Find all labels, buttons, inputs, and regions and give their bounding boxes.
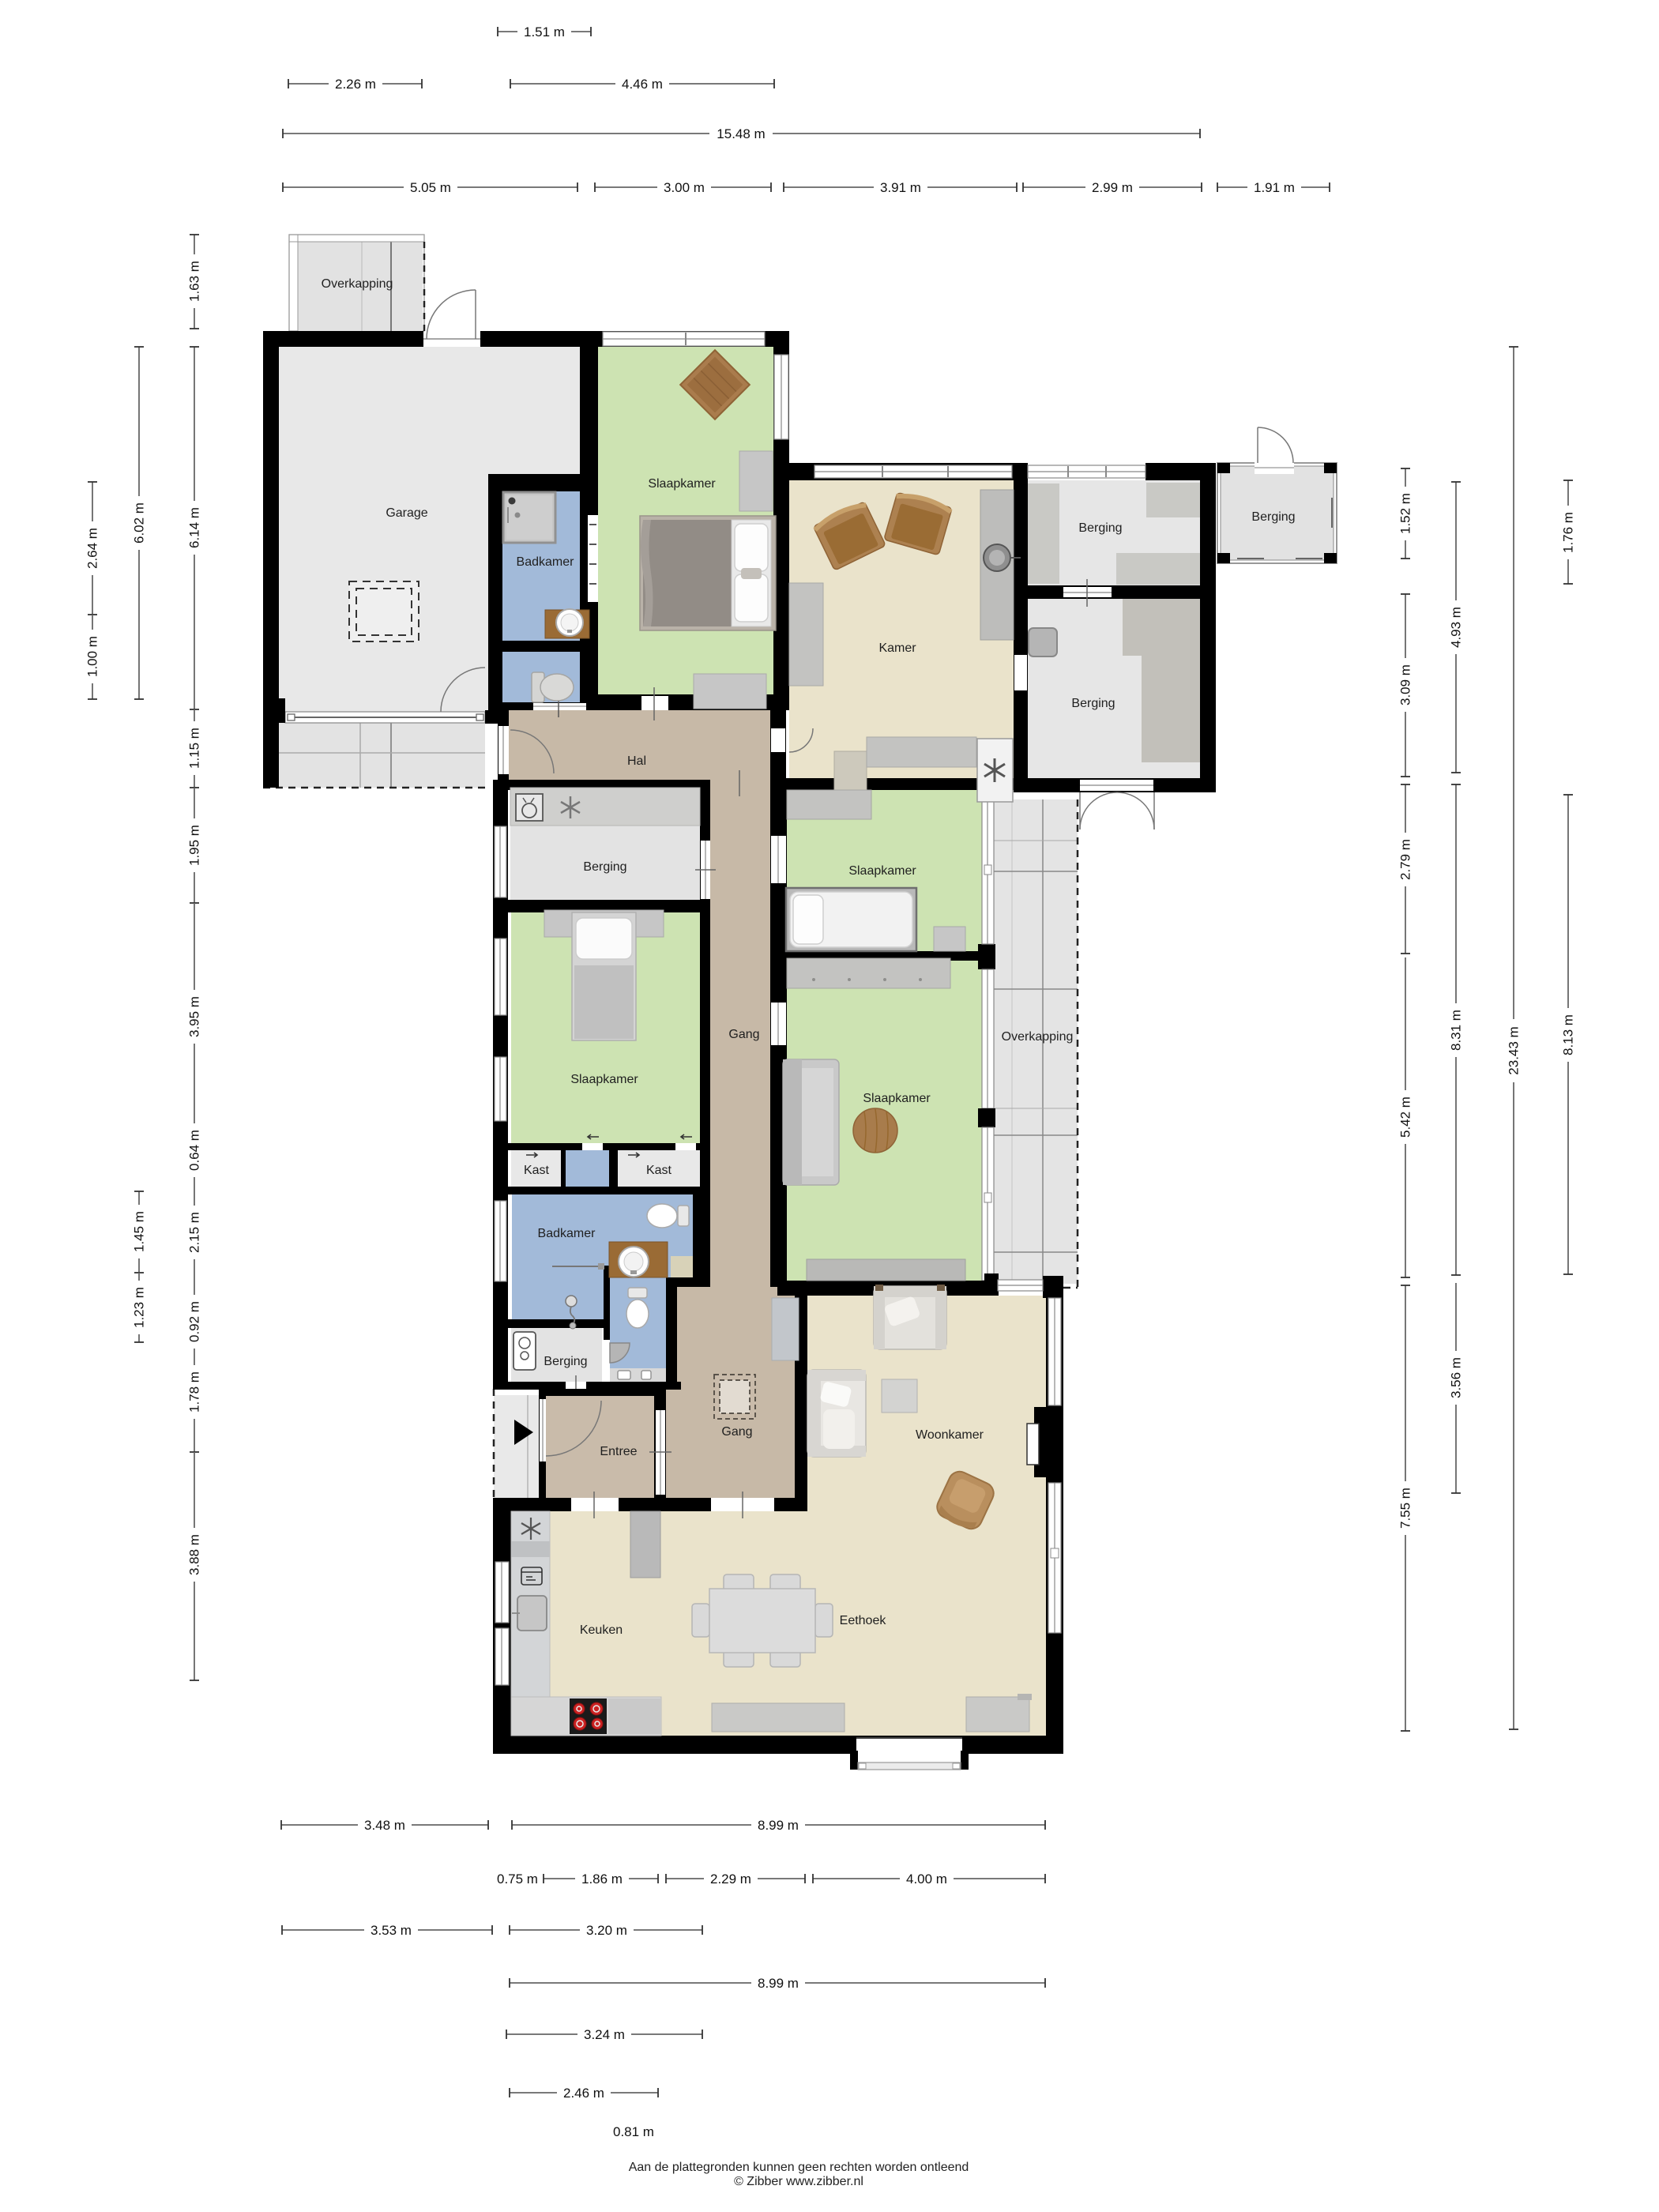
svg-text:3.88 m: 3.88 m xyxy=(187,1534,202,1575)
svg-text:Slaapkamer: Slaapkamer xyxy=(570,1073,638,1086)
svg-text:3.00 m: 3.00 m xyxy=(664,180,705,195)
svg-text:2.46 m: 2.46 m xyxy=(563,2086,604,2101)
svg-text:1.86 m: 1.86 m xyxy=(581,1872,623,1887)
svg-text:Berging: Berging xyxy=(1071,697,1115,710)
svg-text:1.52 m: 1.52 m xyxy=(1398,493,1413,534)
svg-text:© Zibber www.zibber.nl: © Zibber www.zibber.nl xyxy=(734,2175,863,2188)
svg-text:0.81 m: 0.81 m xyxy=(613,2124,654,2139)
svg-text:8.31 m: 8.31 m xyxy=(1449,1010,1464,1051)
svg-text:Kamer: Kamer xyxy=(878,641,916,655)
svg-text:8.13 m: 8.13 m xyxy=(1561,1014,1576,1055)
svg-text:Overkapping: Overkapping xyxy=(1002,1030,1074,1044)
svg-text:2.26 m: 2.26 m xyxy=(335,77,376,92)
svg-text:Gang: Gang xyxy=(721,1425,752,1439)
svg-text:2.64 m: 2.64 m xyxy=(85,528,100,569)
svg-text:15.48 m: 15.48 m xyxy=(717,126,765,141)
svg-text:Garage: Garage xyxy=(386,506,427,520)
svg-text:Kast: Kast xyxy=(524,1164,550,1177)
svg-text:2.29 m: 2.29 m xyxy=(710,1872,751,1887)
svg-text:Slaapkamer: Slaapkamer xyxy=(848,864,916,878)
svg-text:1.23 m: 1.23 m xyxy=(132,1287,147,1328)
svg-text:1.15 m: 1.15 m xyxy=(187,728,202,769)
svg-text:2.15 m: 2.15 m xyxy=(187,1212,202,1253)
svg-text:8.99 m: 8.99 m xyxy=(758,1818,799,1833)
svg-text:3.48 m: 3.48 m xyxy=(364,1818,405,1833)
svg-text:23.43 m: 23.43 m xyxy=(1507,1026,1522,1074)
svg-text:3.53 m: 3.53 m xyxy=(371,1923,412,1938)
svg-text:7.55 m: 7.55 m xyxy=(1398,1488,1413,1529)
svg-text:Entree: Entree xyxy=(600,1445,637,1458)
svg-text:1.51 m: 1.51 m xyxy=(524,24,565,39)
svg-text:Keuken: Keuken xyxy=(580,1623,623,1637)
svg-text:1.76 m: 1.76 m xyxy=(1561,512,1576,553)
svg-text:1.63 m: 1.63 m xyxy=(187,261,202,302)
svg-text:2.79 m: 2.79 m xyxy=(1398,839,1413,880)
svg-text:1.45 m: 1.45 m xyxy=(132,1211,147,1252)
svg-text:3.24 m: 3.24 m xyxy=(584,2027,625,2042)
svg-text:Overkapping: Overkapping xyxy=(322,277,393,291)
svg-text:Slaapkamer: Slaapkamer xyxy=(648,477,716,491)
svg-text:Eethoek: Eethoek xyxy=(840,1614,887,1627)
svg-text:3.09 m: 3.09 m xyxy=(1398,664,1413,705)
svg-text:6.02 m: 6.02 m xyxy=(132,502,147,544)
svg-text:Badkamer: Badkamer xyxy=(517,555,575,569)
svg-text:Gang: Gang xyxy=(728,1028,759,1041)
svg-text:2.99 m: 2.99 m xyxy=(1092,180,1133,195)
svg-text:4.00 m: 4.00 m xyxy=(906,1872,947,1887)
svg-text:Slaapkamer: Slaapkamer xyxy=(863,1092,931,1105)
svg-text:6.14 m: 6.14 m xyxy=(187,507,202,548)
svg-text:1.95 m: 1.95 m xyxy=(187,825,202,866)
svg-text:5.42 m: 5.42 m xyxy=(1398,1097,1413,1138)
svg-text:Hal: Hal xyxy=(627,754,646,768)
svg-text:3.56 m: 3.56 m xyxy=(1449,1357,1464,1398)
svg-text:3.91 m: 3.91 m xyxy=(880,180,921,195)
svg-text:Badkamer: Badkamer xyxy=(538,1227,596,1240)
svg-text:8.99 m: 8.99 m xyxy=(758,1976,799,1991)
svg-text:Berging: Berging xyxy=(1078,521,1122,535)
svg-text:3.95 m: 3.95 m xyxy=(187,996,202,1037)
svg-text:3.20 m: 3.20 m xyxy=(586,1923,627,1938)
svg-text:0.64 m: 0.64 m xyxy=(187,1130,202,1171)
svg-text:Kast: Kast xyxy=(646,1164,672,1177)
svg-text:4.46 m: 4.46 m xyxy=(622,77,663,92)
svg-text:0.75 m: 0.75 m xyxy=(497,1872,538,1887)
svg-text:Aan de plattegronden kunnen ge: Aan de plattegronden kunnen geen rechten… xyxy=(629,2161,969,2174)
svg-text:4.93 m: 4.93 m xyxy=(1449,607,1464,648)
svg-text:1.00 m: 1.00 m xyxy=(85,636,100,677)
svg-text:Berging: Berging xyxy=(583,860,626,874)
svg-text:Berging: Berging xyxy=(544,1355,587,1368)
svg-text:1.78 m: 1.78 m xyxy=(187,1371,202,1413)
svg-text:Woonkamer: Woonkamer xyxy=(916,1428,984,1442)
svg-text:1.91 m: 1.91 m xyxy=(1254,180,1295,195)
svg-text:5.05 m: 5.05 m xyxy=(410,180,451,195)
svg-text:0.92 m: 0.92 m xyxy=(187,1301,202,1342)
svg-text:Berging: Berging xyxy=(1251,510,1295,524)
